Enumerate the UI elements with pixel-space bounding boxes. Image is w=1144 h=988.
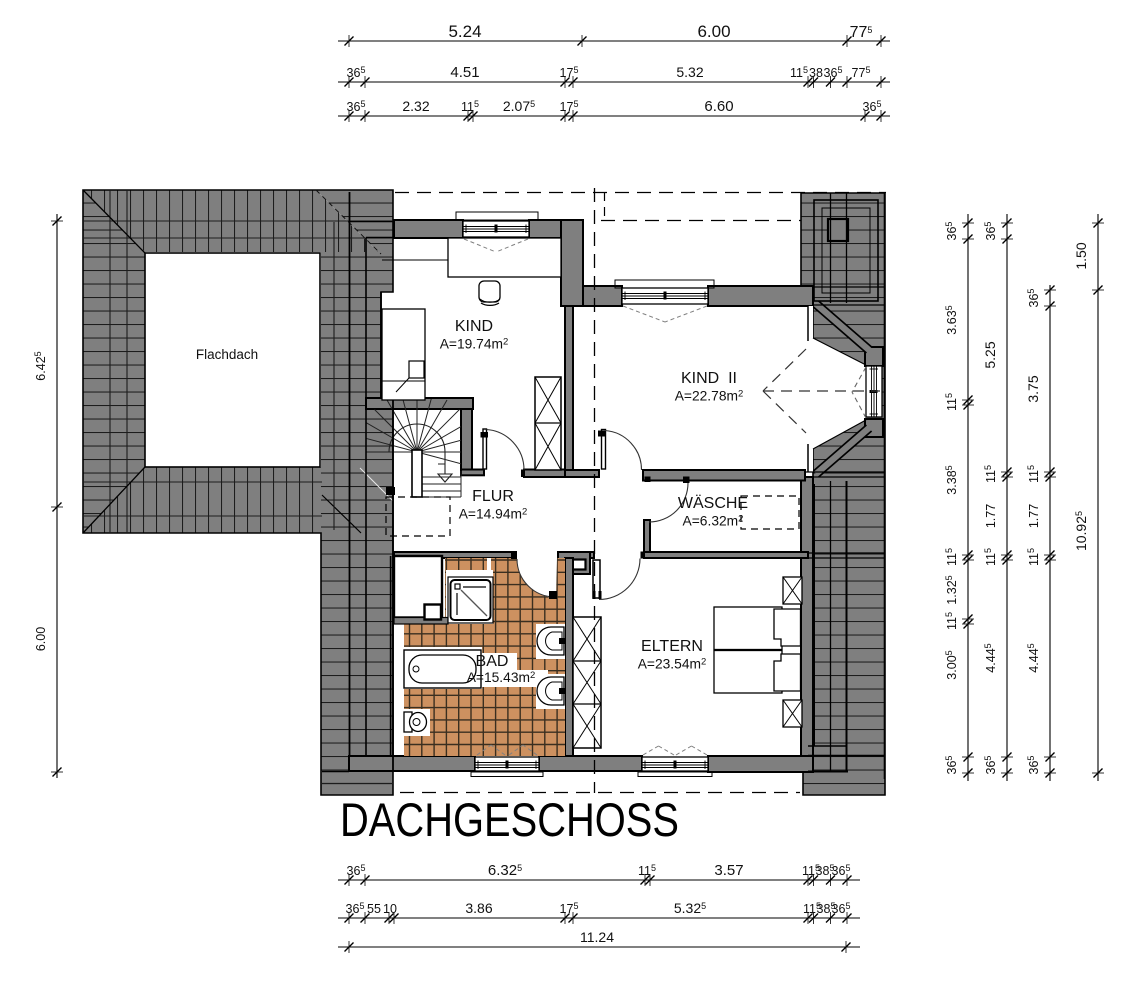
svg-text:55: 55 [367,902,381,916]
svg-text:11.24: 11.24 [580,929,614,945]
svg-text:KIND II: KIND II [681,370,737,387]
svg-text:FLUR: FLUR [472,488,514,505]
svg-text:6.00: 6.00 [34,627,48,651]
svg-text:6.325: 6.325 [488,862,522,879]
svg-text:A=19.74m2: A=19.74m2 [440,337,509,352]
svg-text:1.77: 1.77 [1027,504,1041,528]
svg-text:A=14.94m2: A=14.94m2 [459,507,528,522]
svg-text:3.86: 3.86 [465,900,492,916]
svg-text:10.925: 10.925 [1073,511,1089,551]
svg-text:2.32: 2.32 [402,98,429,114]
svg-text:KIND: KIND [455,318,493,335]
svg-text:BAD: BAD [476,653,509,670]
svg-text:5.25: 5.25 [982,341,998,368]
svg-text:10: 10 [383,902,397,916]
svg-text:3.57: 3.57 [714,862,743,879]
svg-text:A=15.43m2: A=15.43m2 [467,670,536,685]
svg-text:1.50: 1.50 [1073,242,1089,269]
svg-text:6.00: 6.00 [697,22,730,41]
svg-text:5.24: 5.24 [448,22,481,41]
svg-text:Flachdach: Flachdach [196,347,258,362]
svg-text:4.51: 4.51 [450,64,479,81]
svg-text:A=22.78m2: A=22.78m2 [675,389,744,404]
svg-text:A=6.32m2: A=6.32m2 [683,514,744,529]
svg-text:A=23.54m2: A=23.54m2 [638,657,707,672]
svg-text:38: 38 [809,66,823,80]
svg-text:ELTERN: ELTERN [641,638,703,655]
svg-text:1.77: 1.77 [984,504,998,528]
svg-text:6.60: 6.60 [704,98,733,115]
svg-text:DACHGESCHOSS: DACHGESCHOSS [340,794,679,847]
svg-text:WÄSCHE: WÄSCHE [678,494,748,512]
svg-text:5.32: 5.32 [676,64,703,80]
svg-text:3.75: 3.75 [1025,375,1041,402]
